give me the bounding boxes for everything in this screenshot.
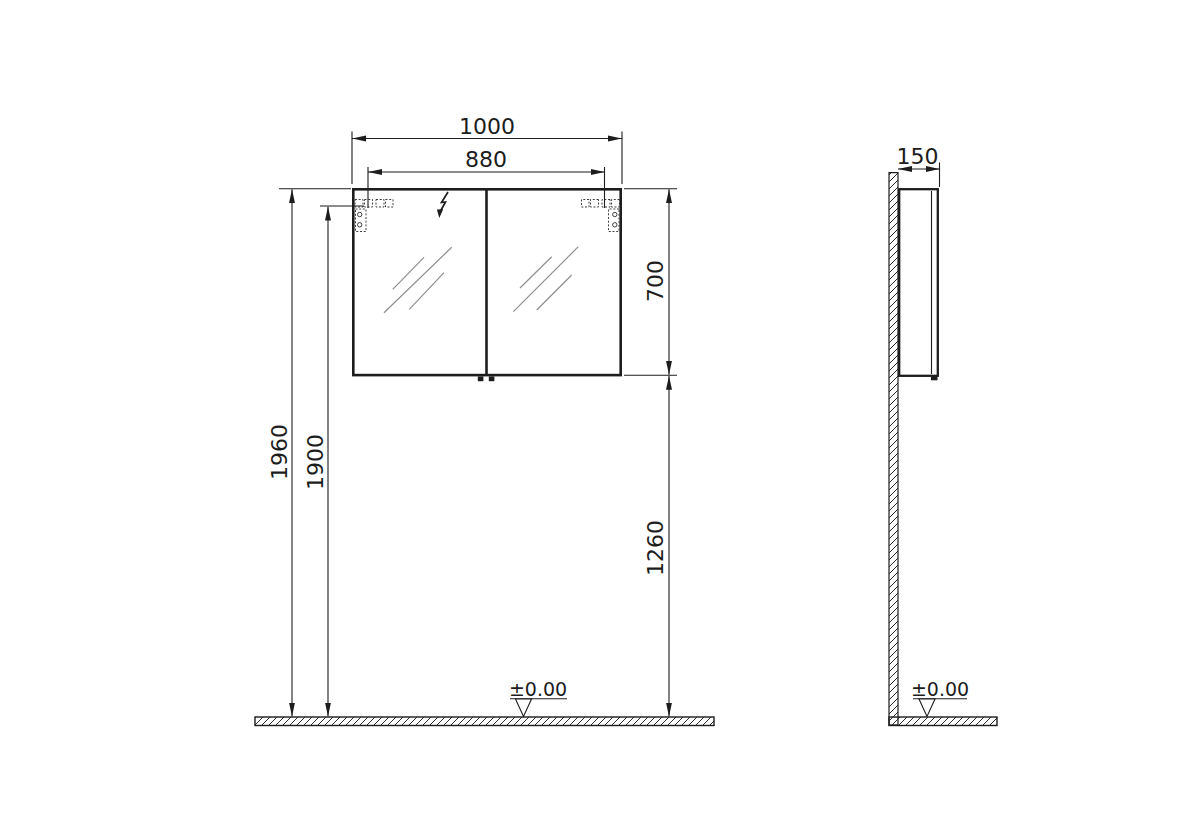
- mirror-cabinet-dimension-drawing: 1000 880 1960 1900 700: [0, 0, 1190, 840]
- mirror-hatch-line: [520, 257, 552, 288]
- mirror-hatch-line: [537, 275, 572, 310]
- level-label-front: ±0.00: [509, 678, 567, 700]
- dimension-label-150: 150: [897, 144, 939, 169]
- door-handle-right: [489, 376, 495, 381]
- dimension-fixing-height: 1900: [303, 206, 364, 717]
- lightning-bolt-icon: [437, 192, 448, 218]
- mirror-glass-right: [513, 247, 578, 312]
- mirror-hatch-line: [393, 257, 424, 289]
- dimension-label-1900: 1900: [303, 434, 328, 490]
- dimension-cabinet-height: 700: [624, 189, 677, 376]
- front-view: 1000 880 1960 1900 700: [255, 114, 714, 726]
- door-bottom-edge: [931, 376, 938, 380]
- level-label-side: ±0.00: [911, 678, 969, 700]
- wall-section: [889, 173, 898, 725]
- mirror-hatch-line: [513, 247, 578, 312]
- floor-level-datum-side: ±0.00: [911, 678, 969, 717]
- dimension-label-1960: 1960: [267, 424, 292, 480]
- technical-drawing-page: 1000 880 1960 1900 700: [0, 0, 1190, 840]
- door-handle-left: [478, 376, 484, 381]
- dimension-depth: 150: [897, 144, 940, 187]
- dimension-label-1000: 1000: [459, 114, 515, 139]
- level-datum-triangle: [919, 699, 935, 717]
- dimension-underside-height: 1260: [643, 376, 669, 717]
- side-view: 150 ±0.00: [889, 144, 997, 726]
- level-datum-triangle: [516, 699, 532, 717]
- dimension-label-880: 880: [465, 147, 507, 172]
- mirror-hatch-line: [384, 247, 452, 312]
- floor-level-datum-front: ±0.00: [509, 678, 567, 717]
- dimension-label-1260: 1260: [643, 520, 668, 576]
- dimension-label-700: 700: [643, 260, 668, 302]
- mounting-bracket-left: [355, 200, 393, 232]
- mounting-bracket-right: [582, 200, 620, 232]
- mirror-glass-left: [384, 247, 452, 312]
- floor-section-side: [889, 717, 997, 726]
- mirror-hatch-line: [409, 273, 444, 310]
- floor-section-front: [255, 717, 714, 726]
